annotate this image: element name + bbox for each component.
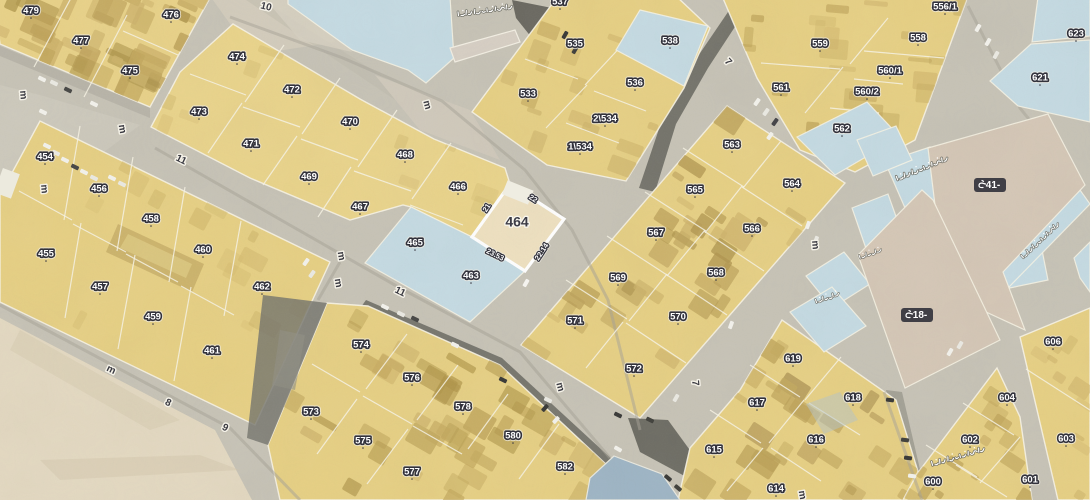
svg-text:619: 619 [785, 354, 801, 365]
svg-text:m: m [796, 490, 808, 500]
svg-text:580: 580 [505, 431, 521, 442]
svg-text:18-: 18- [913, 310, 927, 321]
svg-text:456: 456 [91, 184, 107, 195]
svg-text:m: m [809, 240, 821, 250]
svg-text:606: 606 [1045, 337, 1061, 348]
svg-text:576: 576 [404, 373, 420, 384]
svg-text:537: 537 [552, 0, 568, 8]
svg-text:457: 457 [92, 282, 108, 293]
svg-text:615: 615 [706, 445, 723, 456]
svg-text:575: 575 [355, 436, 372, 447]
svg-text:617: 617 [749, 398, 765, 409]
svg-text:538: 538 [662, 36, 678, 47]
svg-text:464: 464 [505, 214, 529, 230]
svg-text:536: 536 [627, 78, 643, 89]
svg-text:41-: 41- [986, 180, 1000, 191]
svg-text:578: 578 [455, 402, 471, 413]
svg-text:458: 458 [143, 214, 159, 225]
svg-text:475: 475 [122, 66, 139, 77]
svg-text:562: 562 [834, 124, 850, 135]
svg-text:m: m [38, 184, 50, 194]
svg-text:558: 558 [910, 33, 926, 44]
svg-text:533: 533 [520, 89, 536, 100]
svg-text:462: 462 [254, 282, 270, 293]
svg-text:601: 601 [1022, 475, 1039, 486]
svg-text:621: 621 [1032, 73, 1049, 84]
svg-text:468: 468 [397, 150, 413, 161]
svg-text:476: 476 [163, 10, 179, 21]
svg-text:467: 467 [352, 202, 368, 213]
svg-text:582: 582 [557, 462, 573, 473]
svg-text:465: 465 [407, 238, 424, 249]
svg-text:604: 604 [999, 393, 1016, 404]
svg-text:577: 577 [404, 467, 420, 478]
svg-text:474: 474 [229, 52, 246, 63]
svg-text:470: 470 [342, 117, 358, 128]
svg-text:460: 460 [195, 245, 211, 256]
svg-text:563: 563 [724, 140, 740, 151]
svg-text:602: 602 [962, 435, 978, 446]
svg-text:574: 574 [353, 340, 370, 351]
svg-text:m: m [17, 90, 29, 100]
svg-text:556/1: 556/1 [933, 2, 957, 13]
svg-text:1\534: 1\534 [568, 142, 592, 153]
svg-text:2\534: 2\534 [593, 114, 617, 125]
svg-text:477: 477 [73, 36, 89, 47]
svg-text:561: 561 [773, 83, 790, 94]
svg-text:479: 479 [23, 6, 39, 17]
svg-text:459: 459 [145, 312, 161, 323]
svg-text:600: 600 [925, 477, 941, 488]
svg-text:535: 535 [567, 39, 584, 50]
svg-text:603: 603 [1058, 434, 1074, 445]
svg-text:572: 572 [626, 364, 642, 375]
svg-text:616: 616 [808, 435, 824, 446]
svg-text:471: 471 [243, 139, 260, 150]
svg-text:623: 623 [1068, 29, 1084, 40]
svg-text:569: 569 [610, 273, 626, 284]
svg-text:560/2: 560/2 [855, 87, 879, 98]
svg-text:571: 571 [567, 316, 584, 327]
svg-text:567: 567 [648, 228, 664, 239]
svg-text:573: 573 [303, 407, 319, 418]
svg-text:466: 466 [450, 182, 466, 193]
svg-text:472: 472 [284, 85, 300, 96]
svg-text:560/1: 560/1 [878, 66, 902, 77]
svg-text:473: 473 [191, 107, 207, 118]
svg-text:454: 454 [37, 152, 54, 163]
svg-text:564: 564 [784, 179, 801, 190]
svg-text:568: 568 [708, 268, 724, 279]
svg-text:463: 463 [463, 271, 479, 282]
svg-text:565: 565 [687, 185, 704, 196]
svg-text:461: 461 [204, 346, 221, 357]
svg-text:570: 570 [670, 312, 686, 323]
svg-text:614: 614 [768, 484, 785, 495]
svg-text:559: 559 [812, 39, 828, 50]
svg-text:455: 455 [38, 249, 55, 260]
svg-text:566: 566 [744, 224, 760, 235]
svg-text:469: 469 [301, 172, 317, 183]
svg-text:618: 618 [845, 393, 861, 404]
